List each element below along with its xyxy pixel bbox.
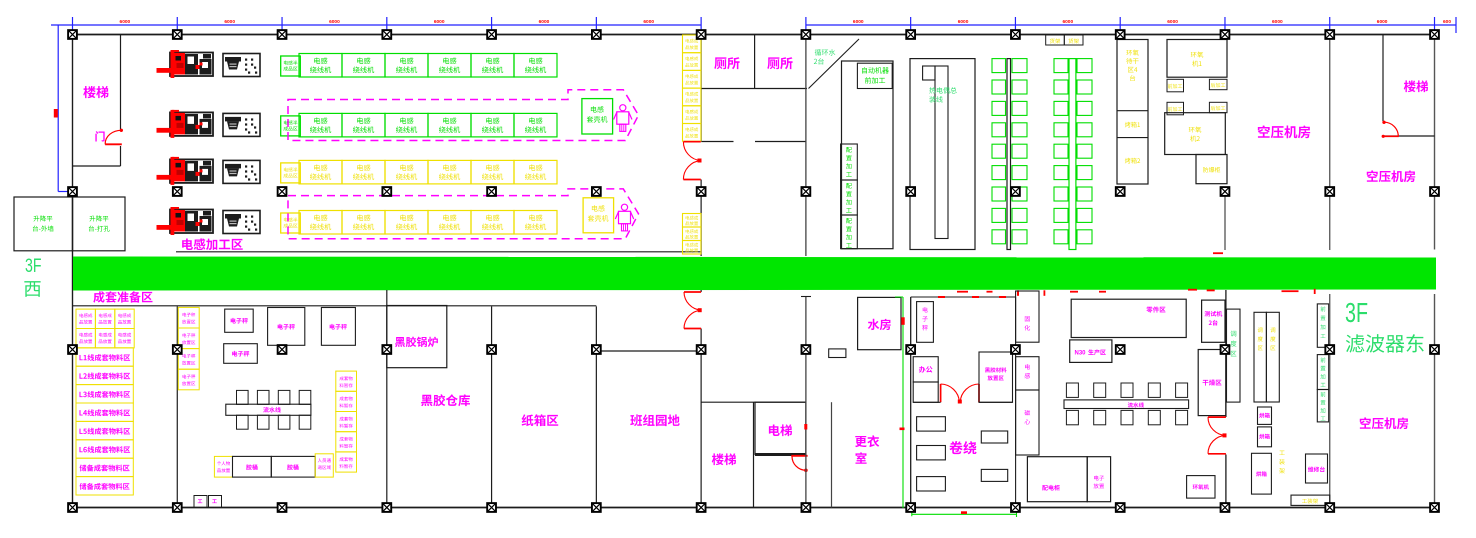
- svg-text:6000: 6000: [1272, 19, 1283, 25]
- svg-text:3F: 3F: [1345, 297, 1368, 328]
- svg-text:6000: 6000: [1062, 19, 1073, 25]
- svg-text:6000: 6000: [539, 19, 550, 25]
- svg-text:6000: 6000: [643, 19, 654, 25]
- svg-text:N30: N30: [1074, 351, 1086, 357]
- svg-text:6000: 6000: [120, 19, 131, 25]
- svg-text:6000: 6000: [1167, 19, 1178, 25]
- svg-text:6000: 6000: [853, 19, 864, 25]
- svg-text:6000: 6000: [434, 19, 445, 25]
- svg-text:6000: 6000: [1377, 19, 1388, 25]
- svg-text:6000: 6000: [329, 19, 340, 25]
- svg-text:600: 600: [1443, 19, 1451, 25]
- svg-text:3F: 3F: [25, 256, 42, 277]
- svg-text:6000: 6000: [224, 19, 235, 25]
- svg-text:6000: 6000: [958, 19, 969, 25]
